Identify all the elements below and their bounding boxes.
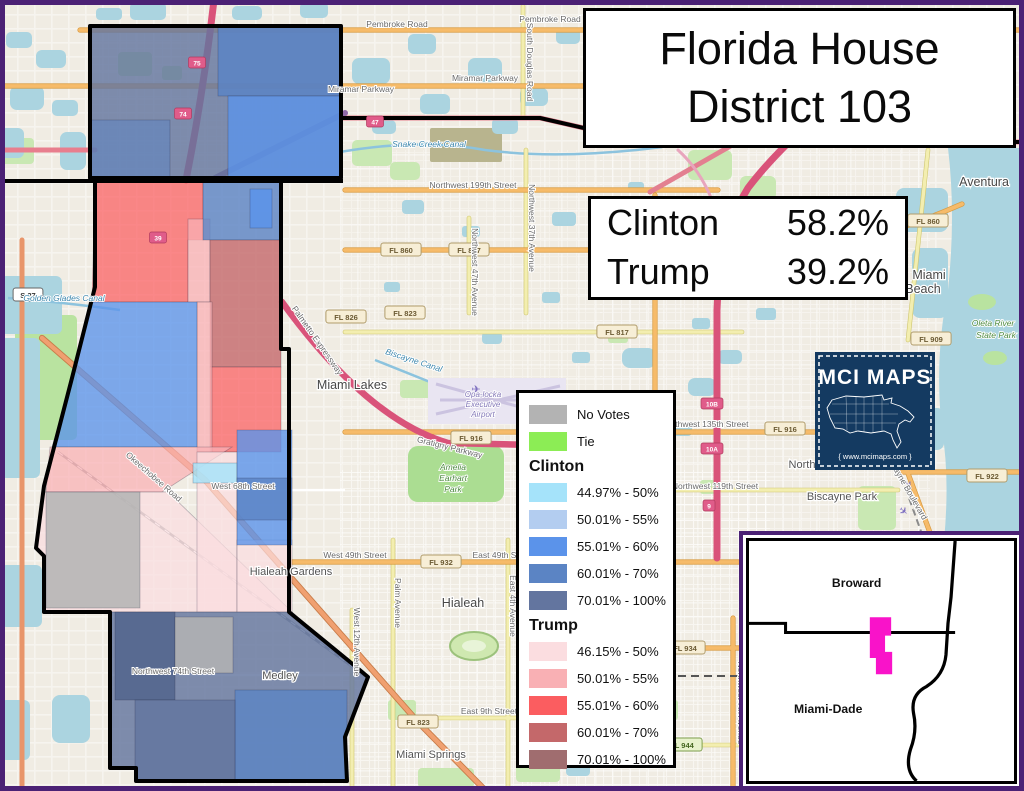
precinct xyxy=(175,617,233,673)
map-label-road: Northwest 37th Avenue xyxy=(527,184,537,272)
precinct xyxy=(250,189,272,228)
legend-label: 55.01% - 60% xyxy=(577,539,659,554)
precinct xyxy=(46,492,140,608)
road-shield: FL 823 xyxy=(398,715,438,728)
map-label-park: Amelia xyxy=(439,462,466,472)
road-shield-text: FL 922 xyxy=(975,472,999,481)
map-label-city: Miami Lakes xyxy=(317,378,387,392)
result-pct: 58.2% xyxy=(787,199,889,248)
map-label-city: Aventura xyxy=(959,175,1009,189)
legend-label: 70.01% - 100% xyxy=(577,752,666,767)
legend-swatch xyxy=(529,483,567,502)
map-label-road: West 68th Street xyxy=(211,481,275,491)
legend-label: Tie xyxy=(577,434,595,449)
legend-label: 50.01% - 55% xyxy=(577,671,659,686)
logo-canvas: MCI MAPS { www.mcimaps.com } xyxy=(815,352,935,470)
legend-item: 50.01% - 55% xyxy=(529,665,673,692)
legend-swatch xyxy=(529,405,567,424)
road-shield: FL 847 xyxy=(449,243,489,256)
road-shield-text: FL 817 xyxy=(605,328,629,337)
legend-swatch xyxy=(529,669,567,688)
legend-item: 44.97% - 50% xyxy=(529,479,673,506)
precinct xyxy=(92,181,203,302)
logo-url: { www.mcimaps.com } xyxy=(838,452,912,461)
road-shield-text: FL 932 xyxy=(429,558,453,567)
motorway-exit-tab: 10A xyxy=(701,443,723,454)
road-shield-text: FL 916 xyxy=(773,425,797,434)
motorway-exit-text: 39 xyxy=(154,236,162,243)
map-label-road: Northwest 119th Street xyxy=(672,481,759,491)
title-line-2: District 103 xyxy=(586,78,1013,137)
road-shield: FL 823 xyxy=(385,306,425,319)
map-label-park: Earhart xyxy=(439,473,468,483)
road-shield-text: FL 826 xyxy=(334,313,358,322)
motorway-exit-text: 47 xyxy=(371,120,379,127)
logo-box: MCI MAPS { www.mcimaps.com } xyxy=(815,352,935,470)
motorway-exit-text: 75 xyxy=(193,61,201,68)
logo-title: MCI MAPS xyxy=(819,366,932,389)
map-label-water: Golden Glades Canal xyxy=(23,293,105,303)
precinct xyxy=(197,302,212,452)
result-name: Clinton xyxy=(607,199,719,248)
title-box: Florida House District 103 xyxy=(583,8,1016,148)
legend-item: 60.01% - 70% xyxy=(529,560,673,587)
legend-item: 55.01% - 60% xyxy=(529,692,673,719)
legend-group-header: Clinton xyxy=(529,455,673,479)
map-label-road: Miramar Parkway xyxy=(452,73,519,83)
legend-box: No VotesTieClinton44.97% - 50%50.01% - 5… xyxy=(516,390,676,768)
legend-swatch xyxy=(529,564,567,583)
legend-item: 55.01% - 60% xyxy=(529,533,673,560)
map-label-road: West 49th Street xyxy=(323,550,387,560)
map-label-road: Palm Avenue xyxy=(393,578,403,628)
legend-label: 60.01% - 70% xyxy=(577,566,659,581)
legend-swatch xyxy=(529,510,567,529)
motorway-exit-text: 10A xyxy=(706,447,718,454)
legend-item: 46.15% - 50% xyxy=(529,638,673,665)
map-label-park: Park xyxy=(444,484,462,494)
legend-label: 44.97% - 50% xyxy=(577,485,659,500)
map-label-road: Northwest 47th Avenue xyxy=(470,228,480,316)
map-label-road: South Douglas Road xyxy=(525,23,535,102)
road-shield: FL 817 xyxy=(597,325,637,338)
motorway-exit-text: 74 xyxy=(179,112,187,119)
map-label-park: State Park xyxy=(976,330,1016,340)
legend-swatch xyxy=(529,723,567,742)
legend-label: 50.01% - 55% xyxy=(577,512,659,527)
map-label-road: East 9th Street xyxy=(461,706,518,716)
map-label-park: Oleta River xyxy=(972,318,1016,328)
road-shield: FL 826 xyxy=(326,310,366,323)
legend-label: 70.01% - 100% xyxy=(577,593,666,608)
road-shield-text: FL 860 xyxy=(389,246,413,255)
road-shield-text: FL 909 xyxy=(919,335,943,344)
map-label-city2: Miami Springs xyxy=(396,749,466,761)
map-label-air: Executive xyxy=(466,400,501,409)
legend-swatch xyxy=(529,642,567,661)
road-shield: FL 916 xyxy=(765,422,805,435)
road-shield-text: FL 860 xyxy=(916,217,940,226)
racetrack xyxy=(450,632,498,660)
legend-label: 46.15% - 50% xyxy=(577,644,659,659)
road-shield: FL 860 xyxy=(908,214,948,227)
motorway-exit-tab: 47 xyxy=(367,116,384,127)
legend-rows: No VotesTieClinton44.97% - 50%50.01% - 5… xyxy=(529,401,673,773)
map-label-road: West 12th Avenue xyxy=(352,608,362,677)
legend-item: No Votes xyxy=(529,401,673,428)
map-label-city: Beach xyxy=(905,282,940,296)
page: { "title": {"line1": "Florida House", "l… xyxy=(0,0,1024,791)
road-shield: FL 922 xyxy=(967,469,1007,482)
map-label-road: Miramar Parkway xyxy=(328,84,395,94)
legend-swatch xyxy=(529,432,567,451)
map-label-city: Miami xyxy=(912,268,945,282)
legend-label: No Votes xyxy=(577,407,630,422)
inset-map-box: Broward Miami-Dade xyxy=(739,531,1024,791)
map-label-city2: Biscayne Park xyxy=(807,491,878,503)
road-shield: FL 860 xyxy=(381,243,421,256)
road-shield-text: FL 823 xyxy=(406,718,430,727)
inset-canvas: Broward Miami-Dade xyxy=(749,541,1014,781)
legend-item: 70.01% - 100% xyxy=(529,587,673,614)
map-label-air: Opa-locka xyxy=(465,390,502,399)
legend-item: 70.01% - 100% xyxy=(529,746,673,773)
map-label-city2: Medley xyxy=(262,670,298,682)
road-shield-text: FL 934 xyxy=(673,644,697,653)
legend-item: Tie xyxy=(529,428,673,455)
precinct xyxy=(115,612,175,700)
map-label-city: Hialeah xyxy=(442,596,484,610)
motorway-exit-text: 9 xyxy=(707,504,711,511)
inset-label-broward: Broward xyxy=(832,576,881,590)
road-shield: FL 932 xyxy=(421,555,461,568)
precinct xyxy=(228,96,341,178)
motorway-exit-tab: 75 xyxy=(189,57,206,68)
map-label-road: Northwest 74th Street xyxy=(132,666,215,676)
precinct xyxy=(135,700,235,781)
legend-swatch xyxy=(529,696,567,715)
map-label-air: Airport xyxy=(470,410,495,419)
road-shield: FL 909 xyxy=(911,332,951,345)
motorway-exit-text: 10B xyxy=(706,402,718,409)
result-row-trump: Trump 39.2% xyxy=(607,248,889,297)
map-label-city2: Hialeah Gardens xyxy=(250,566,333,578)
legend-item: 50.01% - 55% xyxy=(529,506,673,533)
motorway-exit-tab: 10B xyxy=(701,398,723,409)
title-line-1: Florida House xyxy=(586,20,1013,79)
legend-label: 55.01% - 60% xyxy=(577,698,659,713)
legend-group-header: Trump xyxy=(529,614,673,638)
inset-map-inner: Broward Miami-Dade xyxy=(746,538,1017,784)
map-label-city2: North xyxy=(789,459,816,471)
map-label-road: Pembroke Road xyxy=(366,19,428,29)
precinct xyxy=(193,463,237,483)
motorway-exit-tab: 9 xyxy=(703,500,715,511)
legend-swatch xyxy=(529,537,567,556)
result-pct: 39.2% xyxy=(787,248,889,297)
map-label-water: Snake Creek Canal xyxy=(392,139,467,149)
road-shield: FL 916 xyxy=(451,431,491,444)
motorway-exit-tab: 74 xyxy=(175,108,192,119)
map-figure: 7574473910B10A9 FL 860FL 847FL 860FL 823… xyxy=(0,0,1024,791)
precinct xyxy=(90,120,170,178)
legend-label: 60.01% - 70% xyxy=(577,725,659,740)
results-box: Clinton 58.2% Trump 39.2% xyxy=(588,196,908,300)
precinct xyxy=(235,690,347,781)
result-row-clinton: Clinton 58.2% xyxy=(607,199,889,248)
result-name: Trump xyxy=(607,248,710,297)
road-shield-text: FL 823 xyxy=(393,309,417,318)
inset-label-miamidade: Miami-Dade xyxy=(794,702,863,716)
precinct xyxy=(218,26,341,96)
road-shield-text: FL 916 xyxy=(459,434,483,443)
legend-swatch xyxy=(529,750,567,769)
map-label-road: Northwest 199th Street xyxy=(430,180,518,190)
legend-item: 60.01% - 70% xyxy=(529,719,673,746)
legend-swatch xyxy=(529,591,567,610)
motorway-exit-tab: 39 xyxy=(150,232,167,243)
precinct xyxy=(210,240,281,367)
